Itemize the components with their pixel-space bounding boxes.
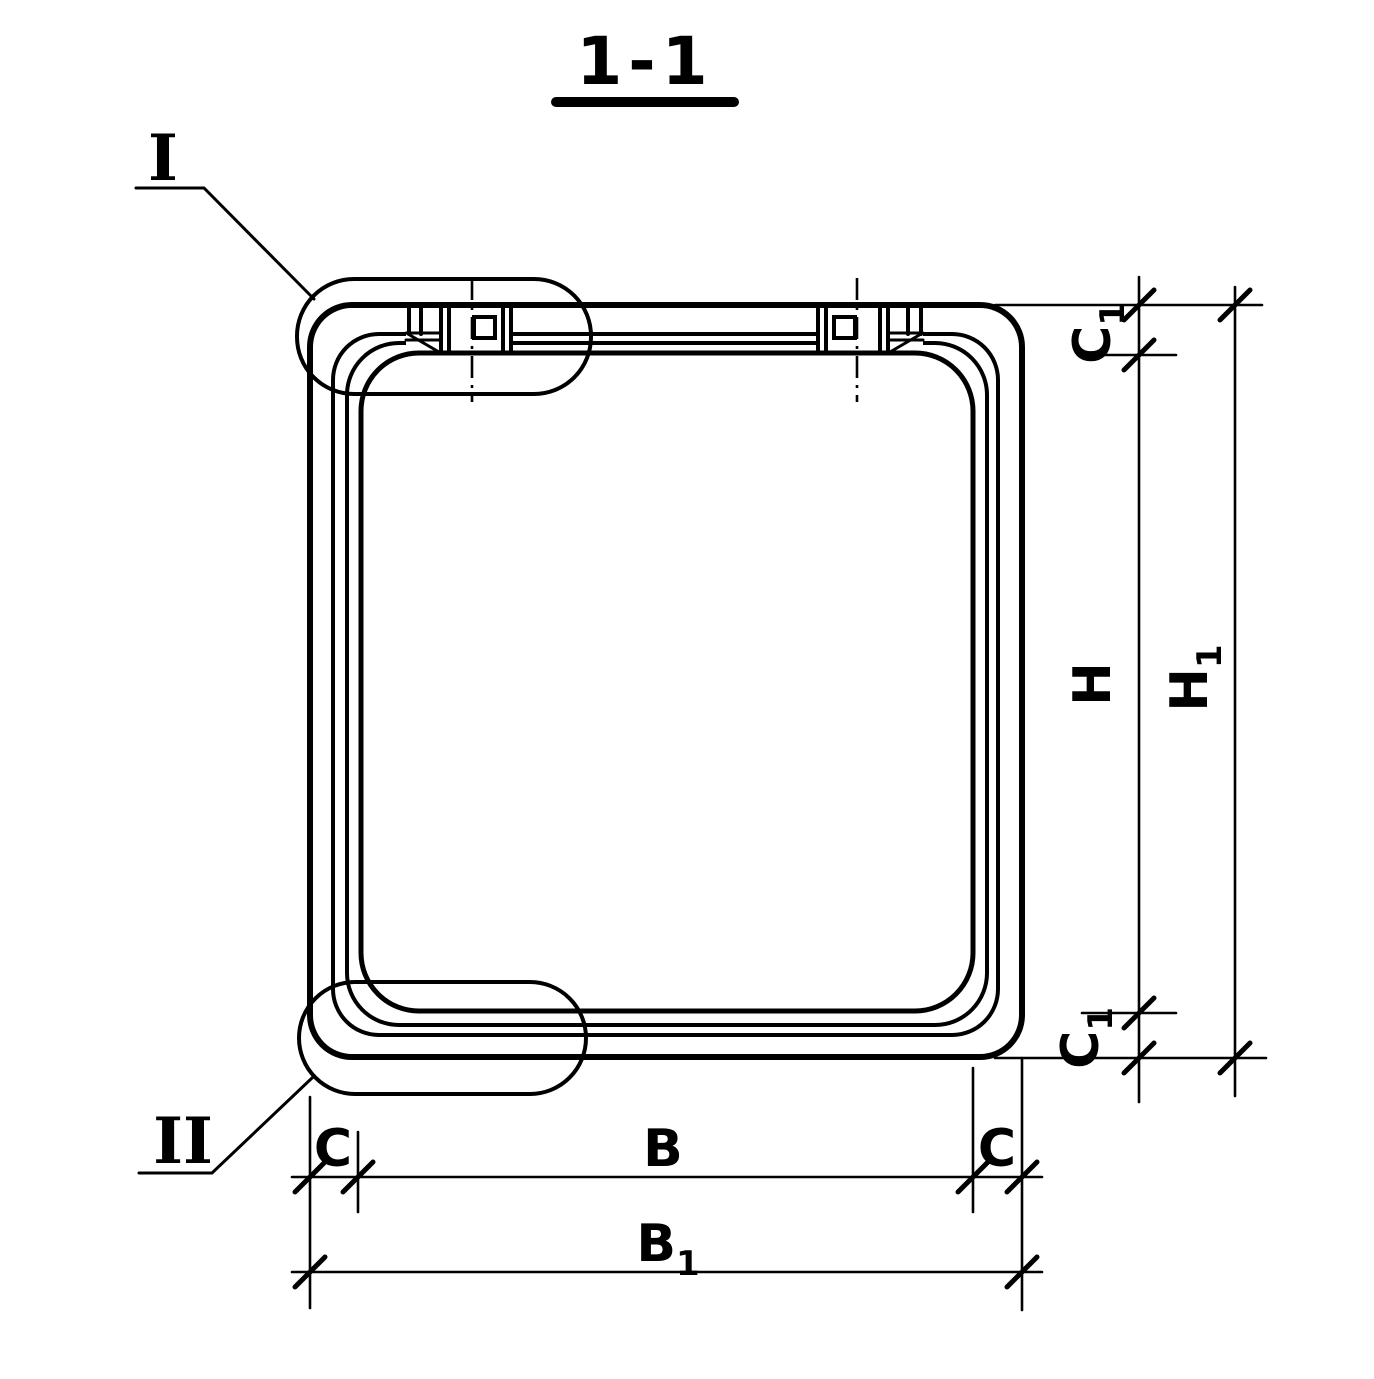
dim-label-c1-top-main: C [1063,326,1123,364]
dim-label-c1-bottom: C1 [1051,1007,1121,1069]
detail-leader-I [136,188,314,299]
dim-label-h1: H1 [1160,644,1230,711]
dim-label-h1-main: H [1160,668,1220,712]
dim-label-b-main: B [643,1119,683,1179]
section-contours [310,305,1022,1057]
outer-contour [310,305,1022,1057]
detail-callout-II: II [153,1104,213,1179]
top-slab-joint-left [406,278,513,402]
dim-label-c-right: C [978,1119,1016,1179]
dim-label-c1-bottom-main: C [1051,1031,1111,1069]
section-title: 1-1 [576,23,713,100]
dim-label-h1-sub: 1 [1190,644,1230,668]
dim-label-c-left: C [314,1119,352,1179]
inner-offset-contour-mid [347,343,987,1025]
joint-left-key [474,317,495,338]
dim-label-c-right-main: C [978,1119,1016,1179]
top-slab-joint-right [816,278,923,402]
dim-label-c1-bottom-sub: 1 [1081,1007,1121,1031]
dim-label-b: B [643,1119,683,1179]
detail-circle-II [299,982,586,1094]
inner-contour [361,353,973,1011]
drawing-sheet: 1-1 I [0,0,1374,1379]
joint-right-key [834,317,855,338]
culvert-section-drawing: 1-1 I [0,0,1374,1379]
inner-offset-contour-outer [333,334,998,1035]
dim-label-c1-top: C1 [1063,302,1133,364]
dim-label-b1-main: B [636,1214,676,1274]
dim-label-b1: B1 [636,1214,699,1284]
dim-label-h: H [1063,662,1123,706]
extension-lines-right [995,305,1266,1058]
dim-label-c-left-main: C [314,1119,352,1179]
detail-callout-I: I [148,121,178,196]
dim-label-b1-sub: 1 [676,1244,700,1284]
dim-label-c1-top-sub: 1 [1093,302,1133,326]
dim-label-h-main: H [1063,662,1123,706]
